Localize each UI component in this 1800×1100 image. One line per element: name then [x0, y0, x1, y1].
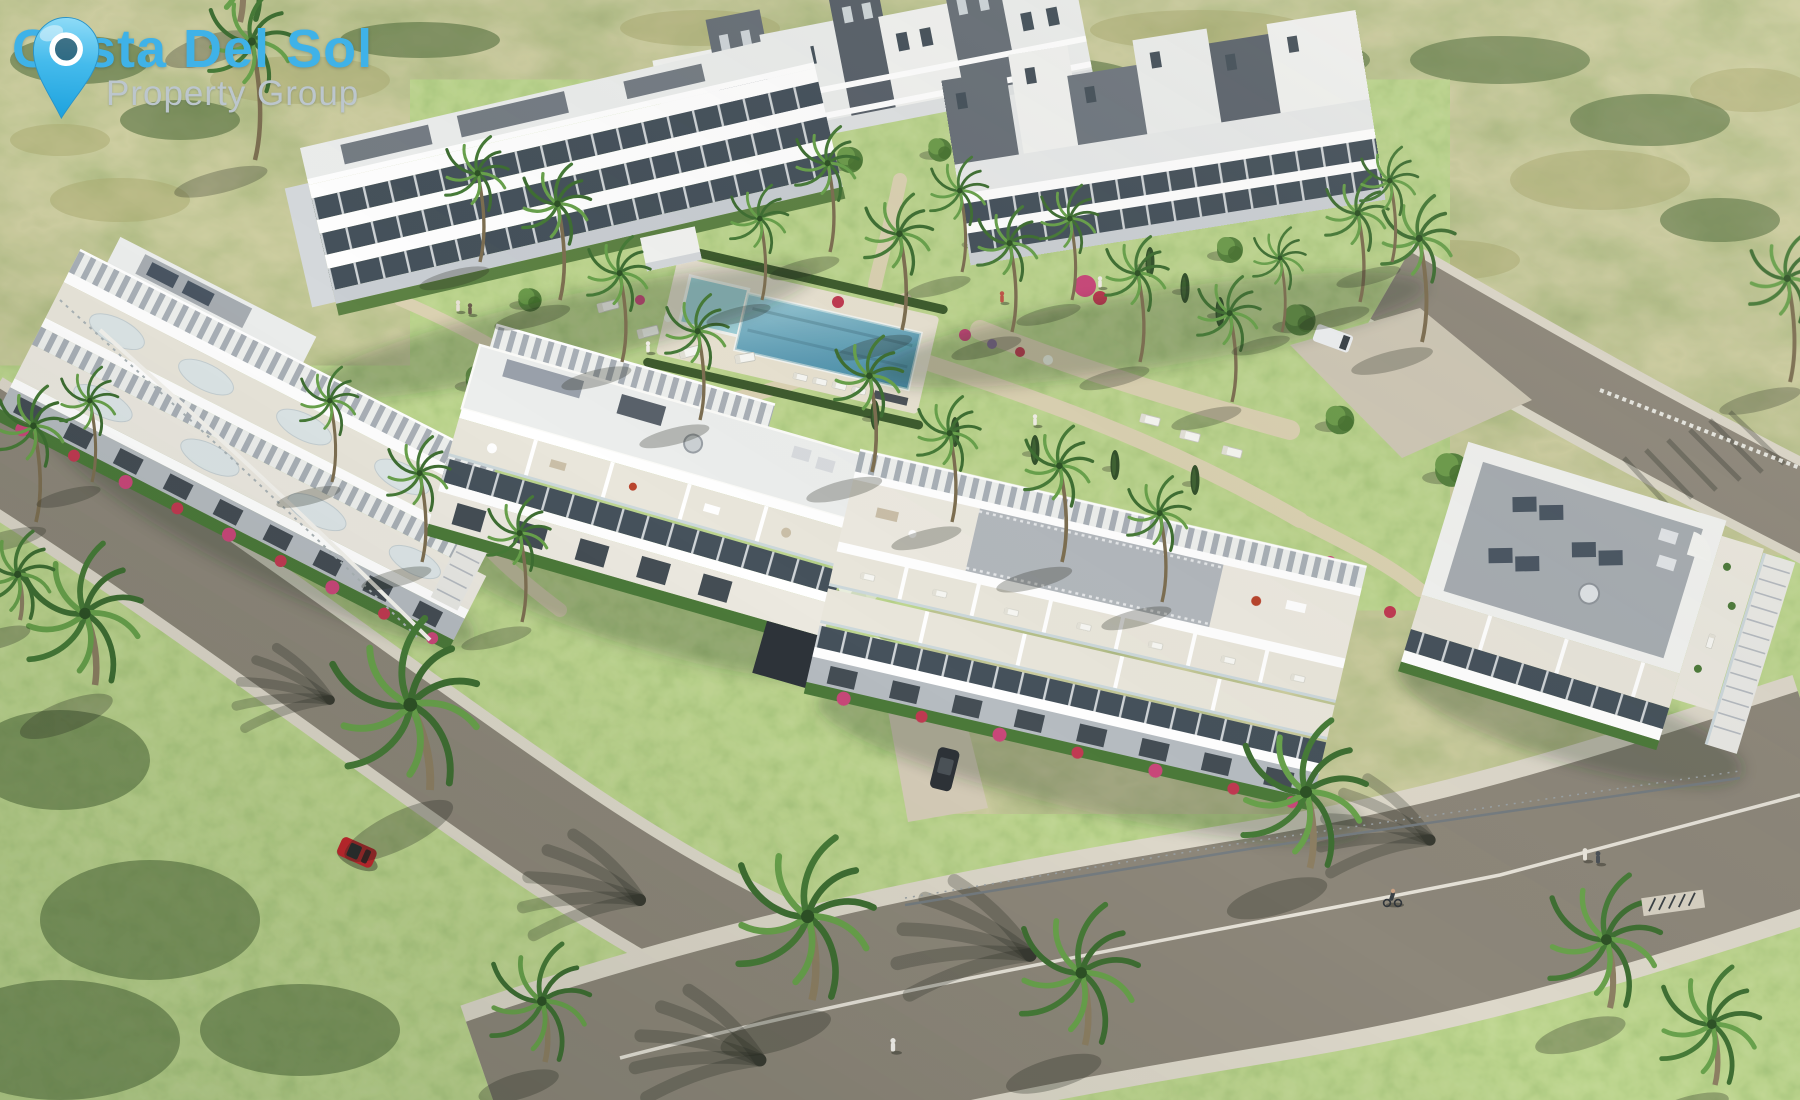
- logo-subtitle: Property Group: [106, 74, 359, 114]
- location-pin-icon: [22, 10, 108, 122]
- watermark-logo: Costa Del Sol Property Group: [4, 4, 624, 124]
- light-overlay: [0, 0, 1800, 1100]
- aerial-render: Costa Del Sol Property Group: [0, 0, 1800, 1100]
- development-scene: [0, 0, 1800, 1100]
